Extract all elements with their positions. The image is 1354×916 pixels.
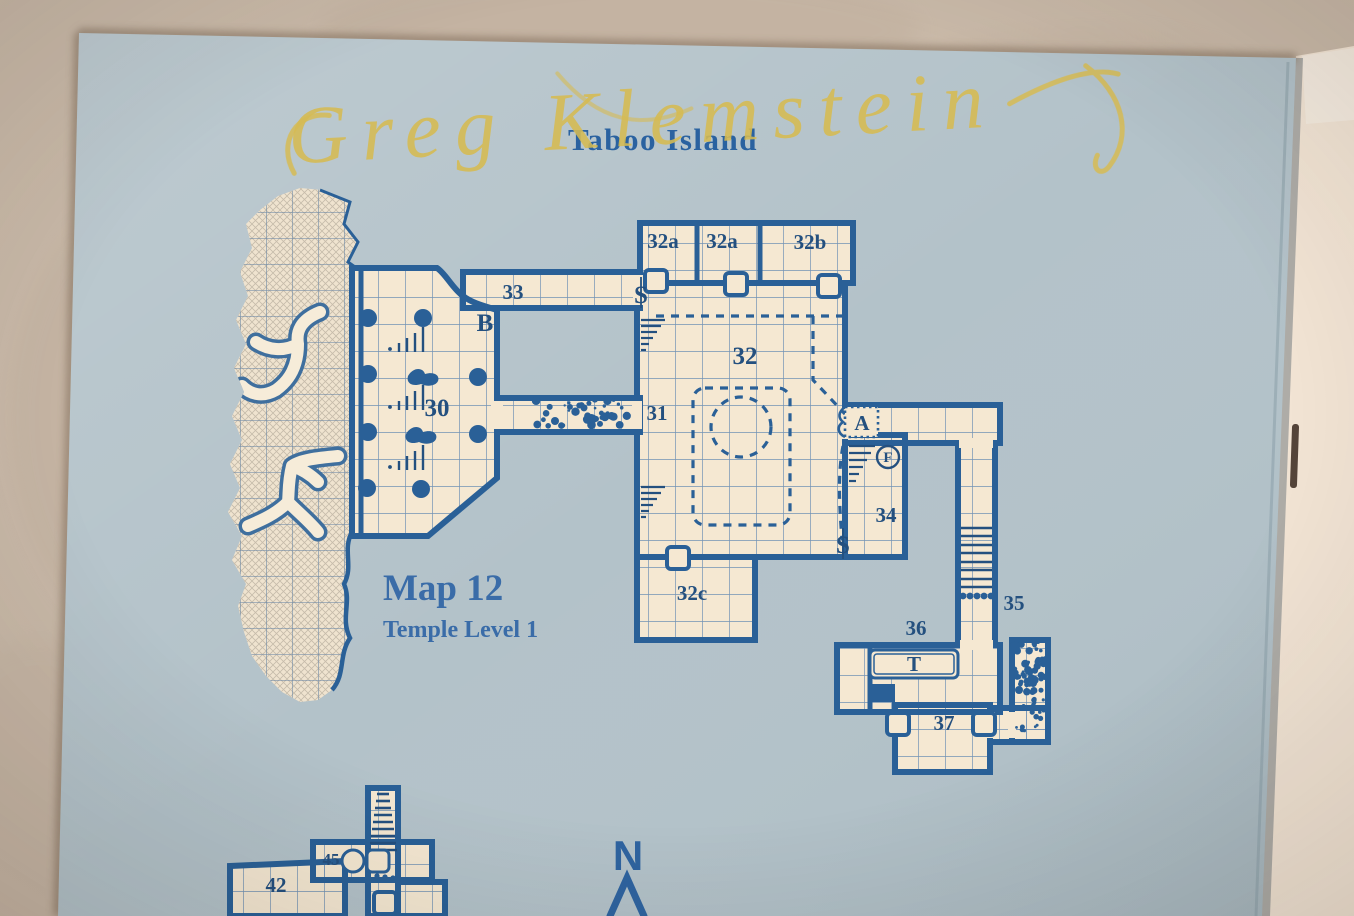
photo-vignette (0, 0, 1354, 916)
map-photo: 32a 32a 32b 33 B 30 31 32 A F 34 S S 32c… (0, 0, 1354, 916)
